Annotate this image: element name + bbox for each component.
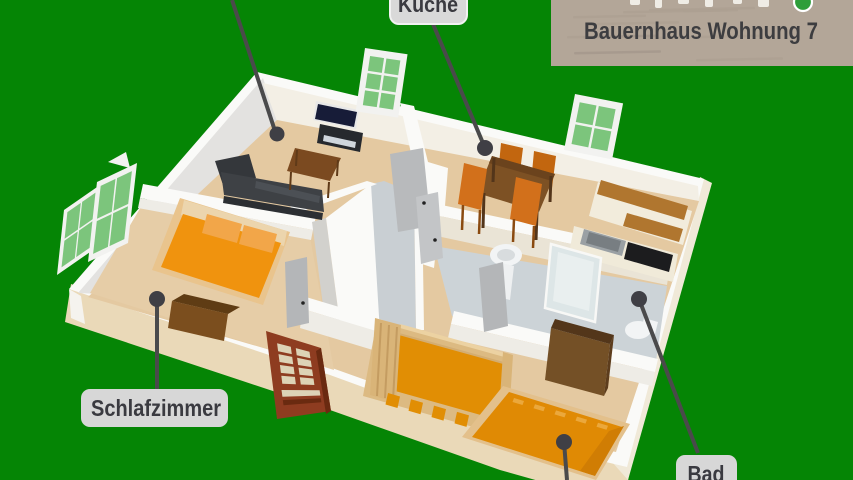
svg-text:Bad: Bad [688, 461, 725, 480]
svg-text:Küche: Küche [398, 0, 458, 17]
svg-text:Schlafzimmer: Schlafzimmer [91, 395, 221, 421]
svg-text:Bauernhaus Wohnung 7: Bauernhaus Wohnung 7 [584, 18, 818, 45]
